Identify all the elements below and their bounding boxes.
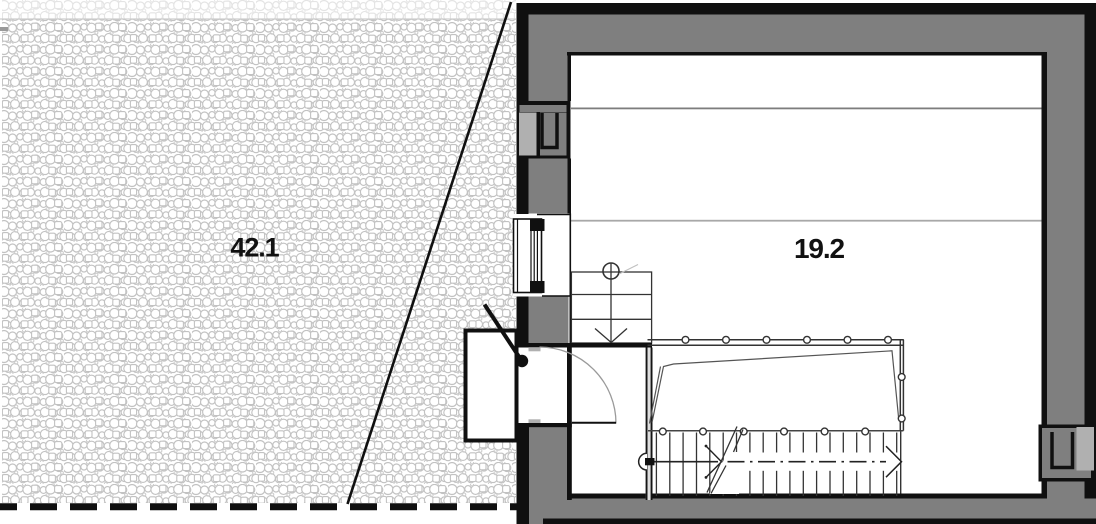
svg-text:42.1: 42.1	[230, 233, 279, 263]
svg-text:19.2: 19.2	[794, 233, 845, 264]
